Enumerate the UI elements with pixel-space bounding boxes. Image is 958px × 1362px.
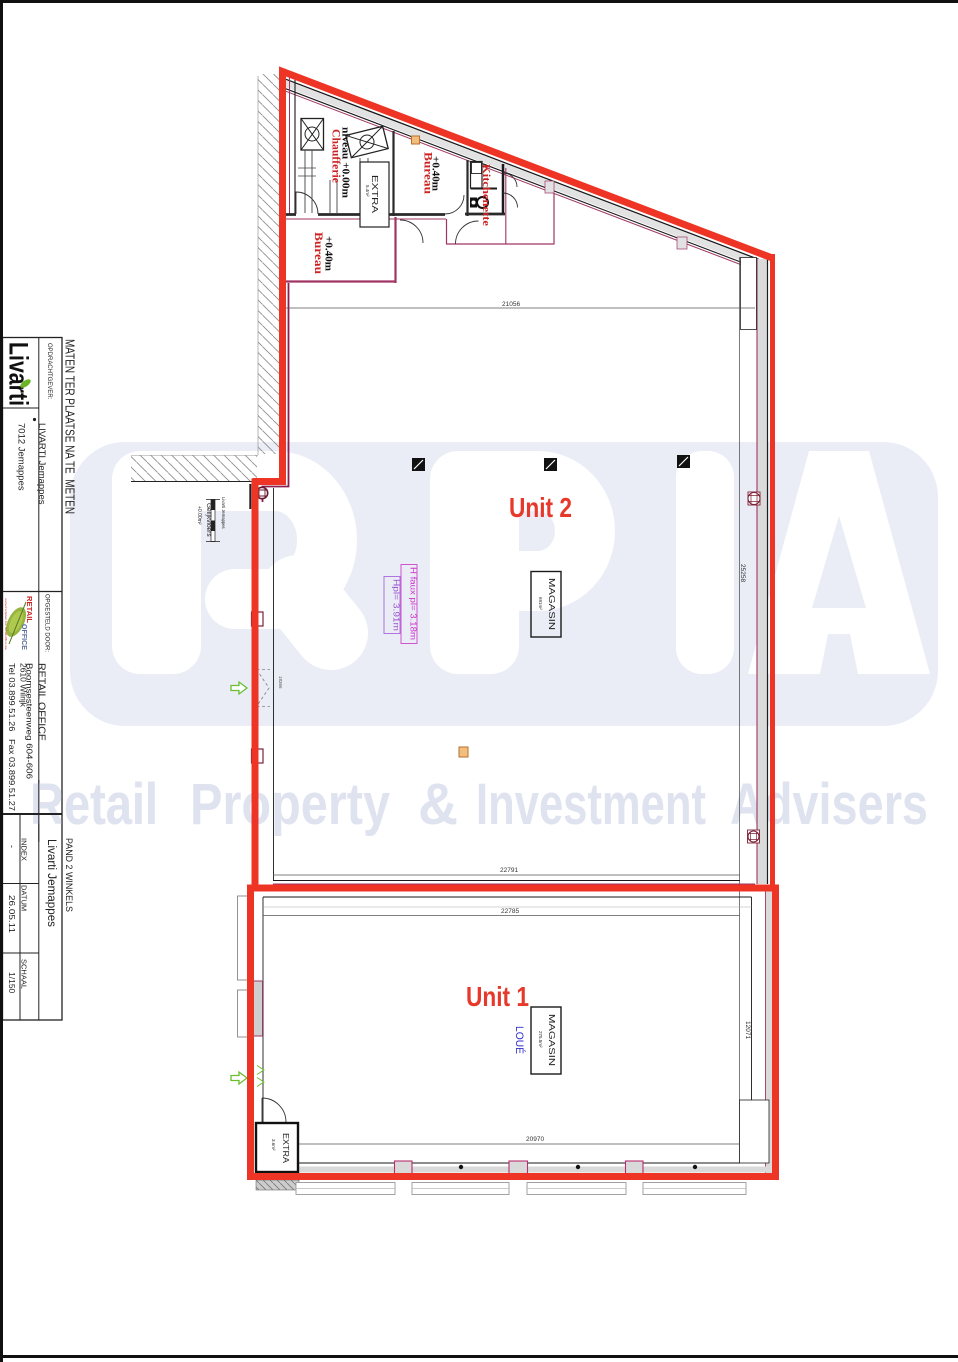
svg-text:&: & <box>418 772 458 837</box>
svg-text:www.hetplan.be retailoffice.be: www.hetplan.be retailoffice.be <box>4 598 8 650</box>
svg-text:Investment: Investment <box>476 772 706 837</box>
svg-text:26.05.11: 26.05.11 <box>7 895 17 933</box>
svg-text:MAGASIN: MAGASIN <box>547 578 556 630</box>
svg-text:18366: 18366 <box>278 676 283 689</box>
svg-text:Livarti Jemappes: Livarti Jemappes <box>45 839 57 927</box>
svg-text:12071: 12071 <box>744 1021 751 1039</box>
svg-text:H faux pl= 3.18m: H faux pl= 3.18m <box>409 567 419 640</box>
svg-text:OFFICE: OFFICE <box>20 624 27 650</box>
svg-text:5.4m²: 5.4m² <box>365 185 370 197</box>
svg-text:OPDRACHTGEVER:: OPDRACHTGEVER: <box>46 343 52 400</box>
svg-text:Gelijkvloers: Gelijkvloers <box>205 503 212 537</box>
svg-text:7012 Jemappes: 7012 Jemappes <box>16 423 27 491</box>
svg-text:MAGASIN: MAGASIN <box>547 1014 556 1066</box>
svg-text:+0.40m: +0.40m <box>430 156 441 191</box>
svg-text:1/150: 1/150 <box>7 972 17 994</box>
svg-text:20970: 20970 <box>526 1136 544 1143</box>
svg-text:niveau +0.00m: niveau +0.00m <box>340 127 351 198</box>
svg-text:Livarti: Livarti <box>4 342 34 406</box>
svg-text:Livarti Jemappes: Livarti Jemappes <box>221 497 226 529</box>
svg-text:Property: Property <box>190 772 390 837</box>
svg-text:LOUÉ: LOUÉ <box>513 1026 526 1054</box>
svg-text:Unit 1: Unit 1 <box>466 981 529 1012</box>
svg-text:22785: 22785 <box>501 908 519 915</box>
svg-text:Retail: Retail <box>30 772 158 837</box>
svg-text:+0.40m: +0.40m <box>323 236 334 271</box>
svg-text:2610 Wilrijk: 2610 Wilrijk <box>19 663 29 708</box>
svg-text:25258: 25258 <box>739 564 746 582</box>
svg-text:RETAIL OFFICE: RETAIL OFFICE <box>36 663 47 741</box>
svg-text:275.5m²: 275.5m² <box>538 1031 543 1048</box>
svg-text:DATUM: DATUM <box>20 885 29 911</box>
svg-text:691m²: 691m² <box>538 597 543 610</box>
svg-text:INDEX: INDEX <box>20 838 29 861</box>
svg-text:Hpl= 3.91m: Hpl= 3.91m <box>392 579 402 631</box>
svg-text:OPGESTELD DOOR:: OPGESTELD DOOR: <box>44 594 50 652</box>
svg-text:Tel 03.899.51.26 Fax 03.899.: Tel 03.899.51.26 Fax 03.899.51.27 <box>7 663 17 811</box>
svg-text:EXTRA: EXTRA <box>281 1133 290 1164</box>
svg-text:+0.00m²: +0.00m² <box>196 506 202 525</box>
svg-text:Bureau: Bureau <box>312 232 324 275</box>
svg-text:SCHAAL: SCHAAL <box>20 959 29 989</box>
svg-text:EXTRA: EXTRA <box>370 175 379 214</box>
svg-text:PAND 2 WINKELS: PAND 2 WINKELS <box>63 838 74 912</box>
svg-text:MATEN TER PLAATSE NA TE METEN: MATEN TER PLAATSE NA TE METEN <box>63 339 77 514</box>
svg-text:RETAIL: RETAIL <box>25 596 32 624</box>
svg-text:-: - <box>7 845 17 848</box>
svg-text:Unit 2: Unit 2 <box>509 492 572 523</box>
svg-text:22791: 22791 <box>500 867 518 874</box>
svg-text:LIVARTI Jemappes: LIVARTI Jemappes <box>36 423 47 505</box>
svg-text:21056: 21056 <box>502 301 520 308</box>
svg-text:Kitchenette: Kitchenette <box>480 164 492 226</box>
svg-text:3.6m²: 3.6m² <box>271 1139 276 1151</box>
